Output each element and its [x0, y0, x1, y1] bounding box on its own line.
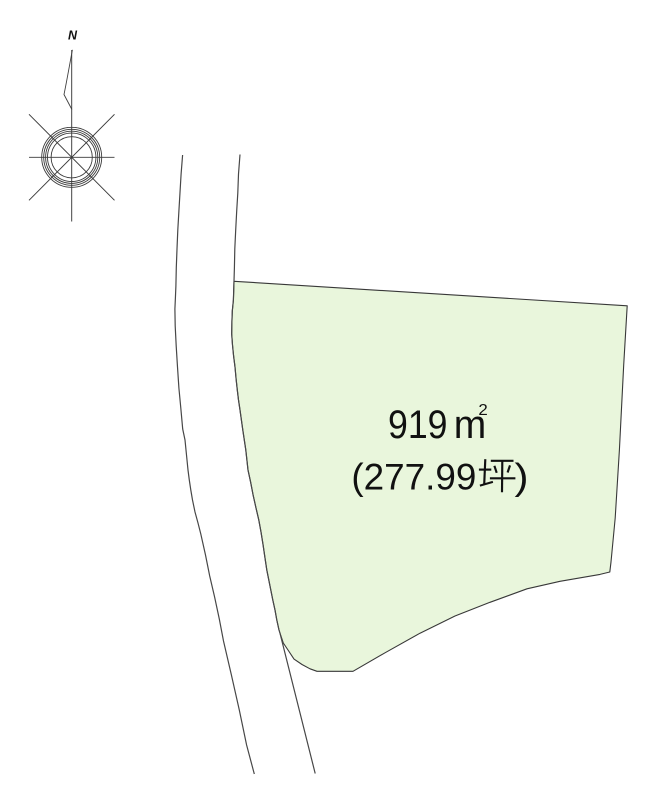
- svg-text:): ): [515, 455, 529, 497]
- svg-text:N: N: [68, 29, 78, 43]
- svg-text:2: 2: [478, 402, 487, 419]
- svg-text:(277.99: (277.99: [351, 455, 476, 497]
- svg-text:919: 919: [388, 403, 448, 447]
